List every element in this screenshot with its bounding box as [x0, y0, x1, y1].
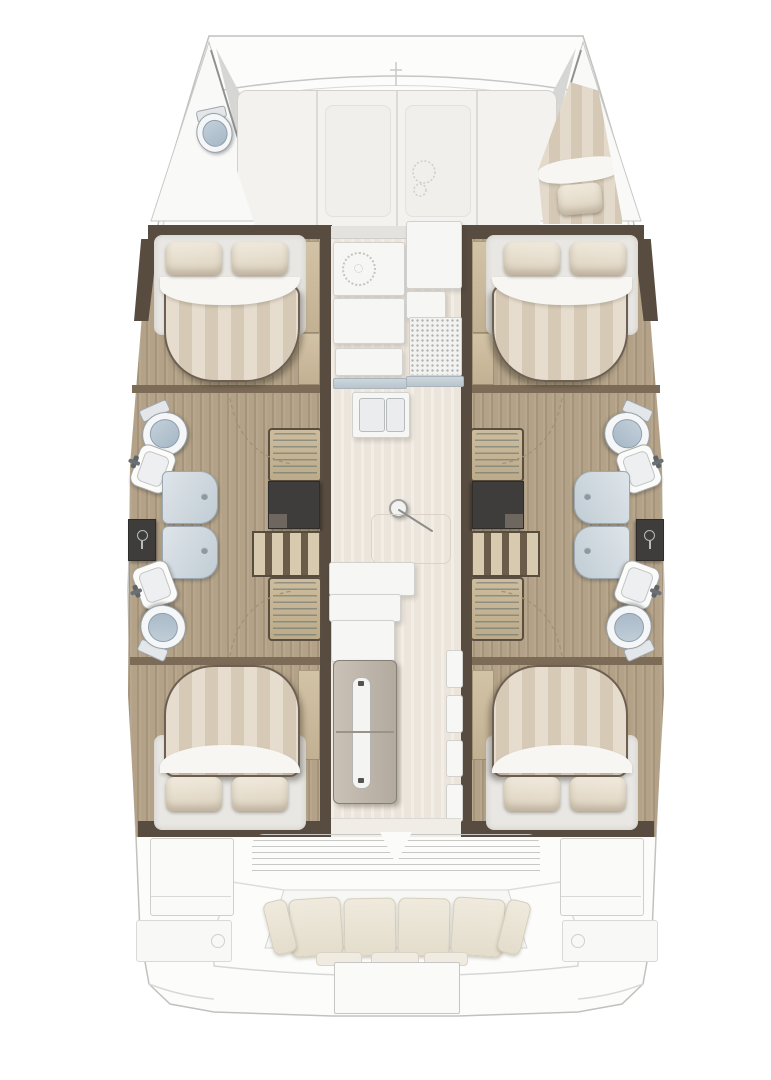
deck-filler-cap-icon [211, 934, 225, 948]
fridge-column [333, 660, 397, 804]
galley-edge-strip [406, 376, 464, 387]
cooktop-burner-center [354, 264, 363, 273]
bed-pillow [504, 777, 560, 811]
aft-cabin-bed [486, 665, 638, 830]
shower-panel [162, 471, 218, 524]
galley-cooktop [333, 242, 405, 296]
galley-worktop [333, 298, 405, 344]
aft-door-threshold [331, 818, 461, 837]
shower-panel [574, 471, 630, 524]
bench-armrest [262, 898, 298, 956]
saloon-seat [329, 594, 401, 622]
bench-cushion [343, 898, 396, 957]
galley-worktop-small [335, 348, 403, 376]
bed-pillow [570, 242, 626, 275]
fridge-handle [352, 677, 371, 789]
locker-dial-icon [137, 530, 148, 541]
bed-pillow [166, 777, 222, 811]
companionway-locker [268, 481, 320, 529]
bench-seat-pad [371, 952, 419, 966]
bench-cushion [397, 898, 450, 957]
starboard-hull [460, 225, 664, 837]
galley-cabinet-small [406, 291, 446, 319]
galley-edge-strip [333, 378, 407, 389]
side-deck-panel-port [136, 920, 232, 962]
sink-basin-small [386, 398, 405, 432]
locker-step [505, 514, 523, 528]
swim-platform [334, 962, 460, 1014]
side-bench-segment [446, 784, 463, 822]
fridge-handle-cap [358, 681, 364, 686]
stern-bench-base [265, 890, 527, 948]
bed-pillow [504, 242, 560, 275]
bowsprit-fitting [390, 62, 402, 86]
bed-pillow [570, 777, 626, 811]
locker-lower-band [151, 896, 231, 914]
cockpit-locker-port [150, 838, 234, 916]
port-forepeak-toilet-icon [192, 105, 237, 157]
sink-basin-large [359, 398, 385, 432]
forward-cabin-bed [486, 235, 638, 380]
bathroom-fwd-bulkhead [472, 385, 660, 393]
side-bench-segment [446, 695, 463, 733]
side-bench [446, 650, 463, 822]
utility-locker [636, 519, 664, 561]
shower-knob [201, 493, 208, 500]
galley-tall-panel [406, 221, 462, 289]
fridge-door-split [336, 731, 394, 733]
aft-door-louvers [252, 834, 540, 876]
cockpit-rails [214, 882, 578, 930]
bed-pillow [232, 242, 288, 275]
berth-pillow [557, 182, 603, 216]
saloon-seat [331, 620, 395, 662]
fridge-handle-cap [358, 778, 364, 783]
bench-armrest [496, 898, 532, 956]
cockpit-panel-divider [476, 91, 478, 228]
bench-cushion [450, 896, 506, 957]
locker-dial-stem [649, 541, 651, 549]
shelf-unit [252, 531, 322, 577]
transom-curves [149, 984, 643, 999]
bench-seat-pad [424, 952, 468, 966]
sun-lounge-panel [325, 105, 391, 217]
companionway-steps-aft [470, 577, 524, 641]
galley-sink [352, 392, 410, 438]
cockpit-panel-divider [316, 91, 318, 228]
shower-cubicle [576, 471, 630, 579]
saloon-seat [329, 562, 415, 596]
bench-cushion [288, 896, 344, 957]
shower-cubicle [162, 471, 216, 579]
galley-drainer-grid [409, 317, 462, 376]
port-hull [128, 225, 332, 837]
cockpit-locker-starboard [560, 838, 644, 916]
side-bench-segment [446, 740, 463, 778]
companionway-steps-aft [268, 577, 322, 641]
locker-lower-band [561, 896, 641, 914]
sun-lounge-panel [405, 105, 471, 217]
floor-hatch [371, 514, 451, 564]
locker-dial-stem [141, 541, 143, 549]
berth-sheet [537, 153, 623, 187]
aft-cabin-bed [154, 665, 306, 830]
companionway-steps-forward [470, 428, 524, 482]
saloon [331, 226, 461, 836]
deck-filler-cap-icon [571, 934, 585, 948]
bathroom-fwd-bulkhead [132, 385, 320, 393]
locker-step [269, 514, 287, 528]
bench-seat-pad [316, 952, 362, 966]
boat-plan-canvas [0, 0, 771, 1080]
side-deck-panel-starboard [562, 920, 658, 962]
forward-cockpit [237, 90, 557, 229]
forward-cabin-bed [154, 235, 306, 380]
shower-knob [584, 493, 591, 500]
crossbeam-arc-front [223, 76, 569, 90]
utility-locker [128, 519, 156, 561]
shower-knob [201, 547, 208, 554]
companionway-steps-forward [268, 428, 322, 482]
bed-pillow [166, 242, 222, 275]
locker-dial-icon [644, 530, 655, 541]
shower-knob [584, 547, 591, 554]
side-bench-segment [446, 650, 463, 688]
shelf-unit [470, 531, 540, 577]
bed-pillow [232, 777, 288, 811]
cockpit-panel-divider [396, 91, 398, 228]
platform-curve [214, 930, 578, 976]
companionway-locker [472, 481, 524, 529]
